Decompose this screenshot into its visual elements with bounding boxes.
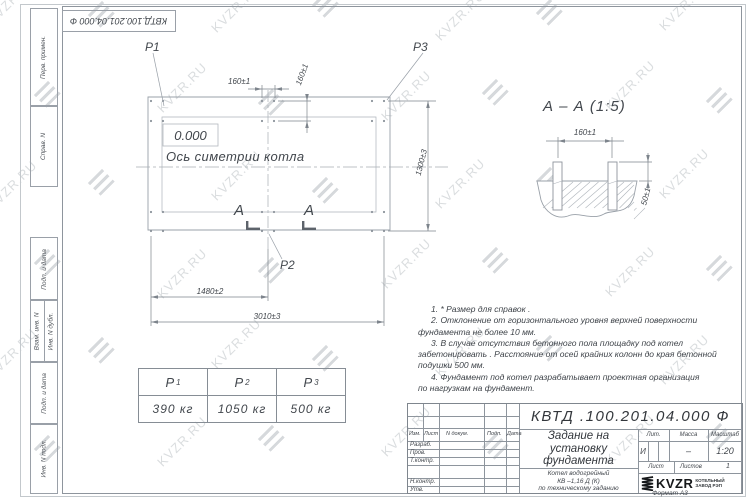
load-value-p2: 1050 кг bbox=[207, 396, 276, 422]
load-value-p3: 500 кг bbox=[276, 396, 345, 422]
title-block: Изм. Лист N докум. Подп. Дата Разраб. Пр… bbox=[407, 403, 743, 494]
tb-product-name: Котел водогрейный КВ –1,16 Д (К) по техн… bbox=[519, 470, 638, 493]
tb-designation: КВТД .100.201.04.000 Ф bbox=[519, 404, 742, 429]
tb-document-title: Задание на установку фундамента bbox=[519, 430, 638, 468]
tb-divider bbox=[674, 461, 675, 473]
p-subscript: 1 bbox=[176, 378, 180, 387]
kvzr-logo-subtitle-2: ЗАВОД РЭП bbox=[695, 483, 724, 488]
tb-scale-value: 1:20 bbox=[708, 441, 742, 461]
technical-notes: 1. * Размер для справок . 2. Отклонение … bbox=[418, 304, 738, 394]
section-cut-marks bbox=[246, 221, 316, 229]
note-line: фундамента не более 10 мм. bbox=[418, 327, 738, 338]
tb-product-line: КВ –1,16 Д (К) bbox=[519, 478, 638, 486]
tb-row-razrab: Разраб. bbox=[410, 442, 432, 448]
p-symbol: P bbox=[303, 375, 312, 390]
tb-divider bbox=[506, 404, 507, 493]
note-line: 1. * Размер для справок . bbox=[418, 304, 738, 315]
tb-title-line: фундамента bbox=[519, 455, 638, 468]
p-subscript: 3 bbox=[314, 378, 318, 387]
tb-col-doc: N докум. bbox=[446, 431, 468, 437]
tb-row-utv: Утв. bbox=[410, 487, 424, 493]
tb-lit-value: И bbox=[638, 441, 648, 461]
tb-divider bbox=[484, 404, 485, 493]
load-point-label-p3: P3 bbox=[413, 40, 428, 54]
load-table-value-row: 390 кг 1050 кг 500 кг bbox=[139, 396, 345, 422]
load-table-header-p1: P1 bbox=[139, 369, 207, 396]
tb-sheets-label: Листов bbox=[680, 464, 702, 470]
kvzr-coil-icon bbox=[641, 476, 654, 491]
tb-title-line: Задание на bbox=[519, 430, 638, 443]
dim-160-top: 160±1 bbox=[228, 77, 250, 86]
tb-row-nkontr: Н.контр. bbox=[410, 479, 435, 485]
tb-mass-value: – bbox=[669, 441, 708, 461]
tb-title-line: установку bbox=[519, 443, 638, 456]
load-table: P1 P2 P3 390 кг 1050 кг 500 кг bbox=[138, 368, 346, 423]
p-symbol: P bbox=[234, 375, 243, 390]
section-letter-right: А bbox=[304, 202, 314, 219]
load-table-header-row: P1 P2 P3 bbox=[139, 369, 345, 396]
tb-divider bbox=[408, 428, 519, 429]
tb-divider bbox=[648, 441, 649, 461]
dim-1480: 1480±2 bbox=[180, 287, 240, 296]
tb-divider bbox=[408, 486, 519, 487]
note-line: 4. Фундамент под котел разрабатывает про… bbox=[418, 372, 738, 383]
note-line: забетонировать . Расстояние от осей край… bbox=[418, 349, 738, 360]
tb-divider bbox=[408, 465, 519, 466]
tb-col-list: Лист bbox=[424, 431, 438, 437]
level-mark: 0.000 bbox=[163, 124, 218, 146]
load-value-p1: 390 кг bbox=[139, 396, 207, 422]
drawing-sheet: KVZR.RUKVZR.RUKVZR.RUKVZR.RUKVZR.RUKVZR.… bbox=[0, 0, 750, 500]
tb-mass-label: Масса bbox=[669, 429, 708, 441]
section-letter-left: А bbox=[234, 202, 244, 219]
tb-col-izm: Изм. bbox=[409, 431, 421, 437]
note-line: 3. В случае отсутствия бетонного пола пл… bbox=[418, 338, 738, 349]
tb-divider bbox=[408, 416, 519, 417]
kvzr-logo-text: KVZR bbox=[656, 476, 693, 491]
tb-row-prov: Пров. bbox=[410, 450, 426, 456]
dim-3010: 3010±3 bbox=[237, 312, 297, 321]
tb-product-line: по техническому заданию bbox=[519, 485, 638, 493]
tb-divider bbox=[519, 468, 638, 469]
tb-col-podp: Подп. bbox=[487, 431, 502, 437]
tb-sheet-label: Лист bbox=[638, 461, 674, 473]
load-table-header-p2: P2 bbox=[207, 369, 276, 396]
p-symbol: P bbox=[165, 375, 174, 390]
load-point-label-p1: P1 bbox=[145, 40, 160, 54]
load-point-label-p2: P2 bbox=[280, 258, 295, 272]
tb-divider bbox=[439, 404, 440, 493]
tb-lit-label: Лит. bbox=[638, 429, 669, 441]
tb-scale-label: Масштаб bbox=[708, 429, 742, 441]
note-line: 2. Отклонение от горизонтального уровня … bbox=[418, 315, 738, 326]
tb-divider bbox=[658, 441, 659, 461]
boiler-axis-label: Ось симетрии котла bbox=[166, 149, 304, 164]
tb-sheets-value: 1 bbox=[726, 463, 730, 470]
tb-row-tkontr: Т.контр. bbox=[410, 458, 434, 464]
load-table-header-p3: P3 bbox=[276, 369, 345, 396]
plan-center-lines bbox=[136, 90, 448, 250]
section-view-title: А – А (1:5) bbox=[543, 98, 626, 115]
p-subscript: 2 bbox=[245, 378, 249, 387]
section-dim-160: 160±1 bbox=[565, 128, 605, 137]
note-line: по нагрузкам на фундамент. bbox=[418, 383, 738, 394]
note-line: подушки 500 мм. bbox=[418, 360, 738, 371]
tb-product-line: Котел водогрейный bbox=[519, 470, 638, 478]
format-label: Формат А3 bbox=[625, 490, 715, 497]
